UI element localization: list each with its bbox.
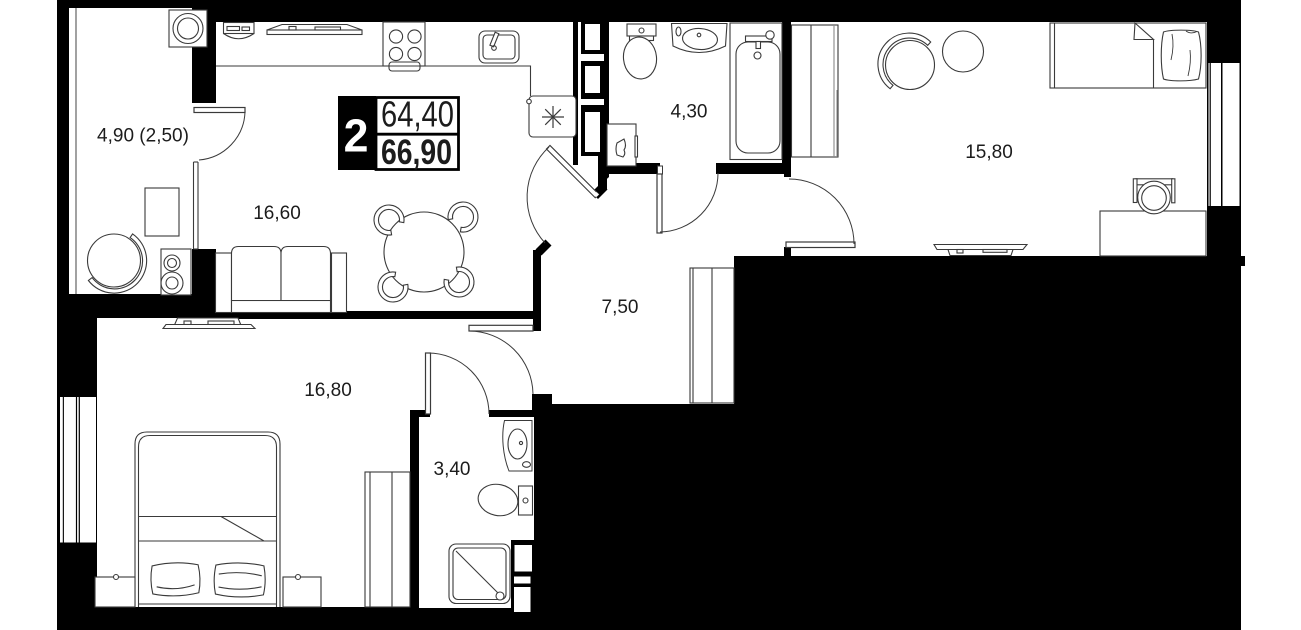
svg-text:16,60: 16,60 — [253, 203, 301, 224]
svg-text:15,80: 15,80 — [965, 142, 1013, 163]
svg-text:16,80: 16,80 — [304, 380, 352, 401]
svg-text:64,40: 64,40 — [381, 94, 454, 135]
svg-text:4,90 (2,50): 4,90 (2,50) — [97, 126, 189, 147]
svg-text:3,40: 3,40 — [434, 459, 471, 480]
svg-text:4,30: 4,30 — [671, 102, 708, 123]
svg-text:7,50: 7,50 — [602, 297, 639, 318]
svg-text:66,90: 66,90 — [381, 132, 452, 172]
svg-text:2: 2 — [344, 110, 369, 162]
